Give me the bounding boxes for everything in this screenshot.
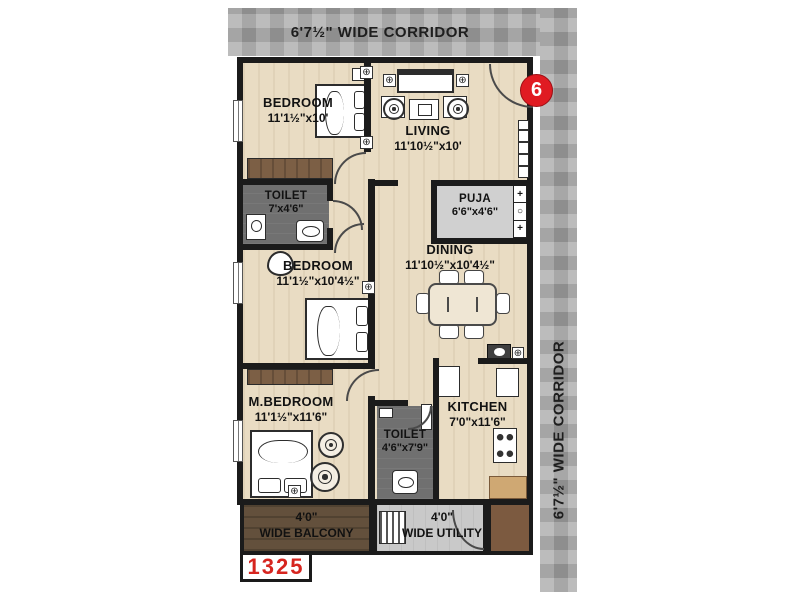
- dining-chair-icon: [439, 324, 459, 339]
- decor-swirl-icon: [310, 462, 340, 492]
- dining-chair-icon: [496, 293, 510, 314]
- stove-icon: [493, 428, 517, 463]
- wc-icon: [296, 220, 324, 242]
- light-point-icon: ⊕: [512, 347, 524, 359]
- light-point-icon: ⊕: [288, 485, 301, 498]
- window-icon: [233, 420, 243, 462]
- light-point-icon: ⊕: [456, 74, 469, 87]
- kitchen-label: KITCHEN7'0"x11'6": [430, 399, 525, 430]
- wall-living-bottom-right: [431, 180, 527, 186]
- utility-label: 4'0"WIDE UTILITY: [400, 510, 484, 541]
- wall-toilet1-bottom: [243, 244, 333, 250]
- area-value-box: 1325: [240, 552, 312, 582]
- wall-living-bottom-stub: [375, 180, 398, 186]
- wc-icon: [392, 470, 418, 494]
- light-point-icon: ⊕: [383, 74, 396, 87]
- kitchen-counter: [489, 476, 527, 499]
- corridor-right-label: 6'7½" WIDE CORRIDOR: [550, 341, 567, 520]
- bed-icon: [305, 298, 372, 360]
- dining-label: DINING11'10½"x10'4½": [390, 242, 510, 273]
- shelf-circle-icon: ○: [514, 203, 526, 220]
- bed-icon: [250, 430, 313, 498]
- pillow-icon: [258, 478, 281, 493]
- shelf-plus-icon: +: [514, 221, 526, 237]
- wall-toilet2-top: [375, 400, 408, 406]
- tv-unit-icon: [518, 120, 529, 178]
- shelf-icon: [379, 408, 393, 418]
- plant-icon: [383, 98, 405, 120]
- window-icon: [233, 262, 243, 304]
- plant-icon: [447, 98, 469, 120]
- toilet2-label: TOILET4'6"x7'9": [377, 428, 433, 456]
- kitchen-door-icon: [496, 368, 519, 397]
- dining-chair-icon: [464, 324, 484, 339]
- unit-number-badge: 6: [520, 74, 553, 107]
- shelf-plus-icon: +: [514, 186, 526, 203]
- washbasin-icon: [246, 214, 266, 240]
- blanket-curve: [258, 440, 308, 463]
- decor-swirl-icon: [318, 432, 344, 458]
- dining-table-icon: [428, 283, 497, 326]
- corridor-top-label: 6'7½" WIDE CORRIDOR: [291, 24, 470, 41]
- fridge-icon: [438, 366, 460, 397]
- pillow-icon: [356, 306, 368, 326]
- floor-plan-scene: 6'7½" WIDE CORRIDOR 6'7½" WIDE CORRIDOR …: [0, 0, 800, 600]
- wall-bedroom1-bottom: [243, 179, 333, 185]
- blanket-curve: [317, 306, 340, 356]
- puja-shelf-icon: + ○ +: [513, 185, 527, 238]
- center-table-icon: [409, 99, 439, 120]
- corridor-top: 6'7½" WIDE CORRIDOR: [228, 8, 577, 56]
- mbedroom-label: M.BEDROOM11'1½"x11'6": [236, 394, 346, 425]
- light-point-icon: ⊕: [360, 66, 373, 79]
- bedroom1-label: BEDROOM11'1½"x10': [242, 95, 354, 126]
- wall-bedroom2-bottom: [243, 363, 375, 369]
- living-label: LIVING11'10½"x10': [372, 123, 484, 154]
- wall-mbedroom-east: [368, 396, 375, 499]
- wardrobe-mbedroom: [247, 369, 333, 385]
- wardrobe-bedroom1: [247, 158, 333, 179]
- toilet1-label: TOILET7'x4'6": [243, 189, 329, 217]
- bedroom2-label: BEDROOM11'1½"x10'4½": [258, 258, 378, 289]
- sofa-icon: [397, 69, 454, 93]
- services-ledge: [487, 501, 533, 555]
- balcony-label: 4'0"WIDE BALCONY: [248, 510, 365, 541]
- pillow-icon: [356, 332, 368, 352]
- puja-label: PUJA6'6"x4'6": [437, 192, 513, 220]
